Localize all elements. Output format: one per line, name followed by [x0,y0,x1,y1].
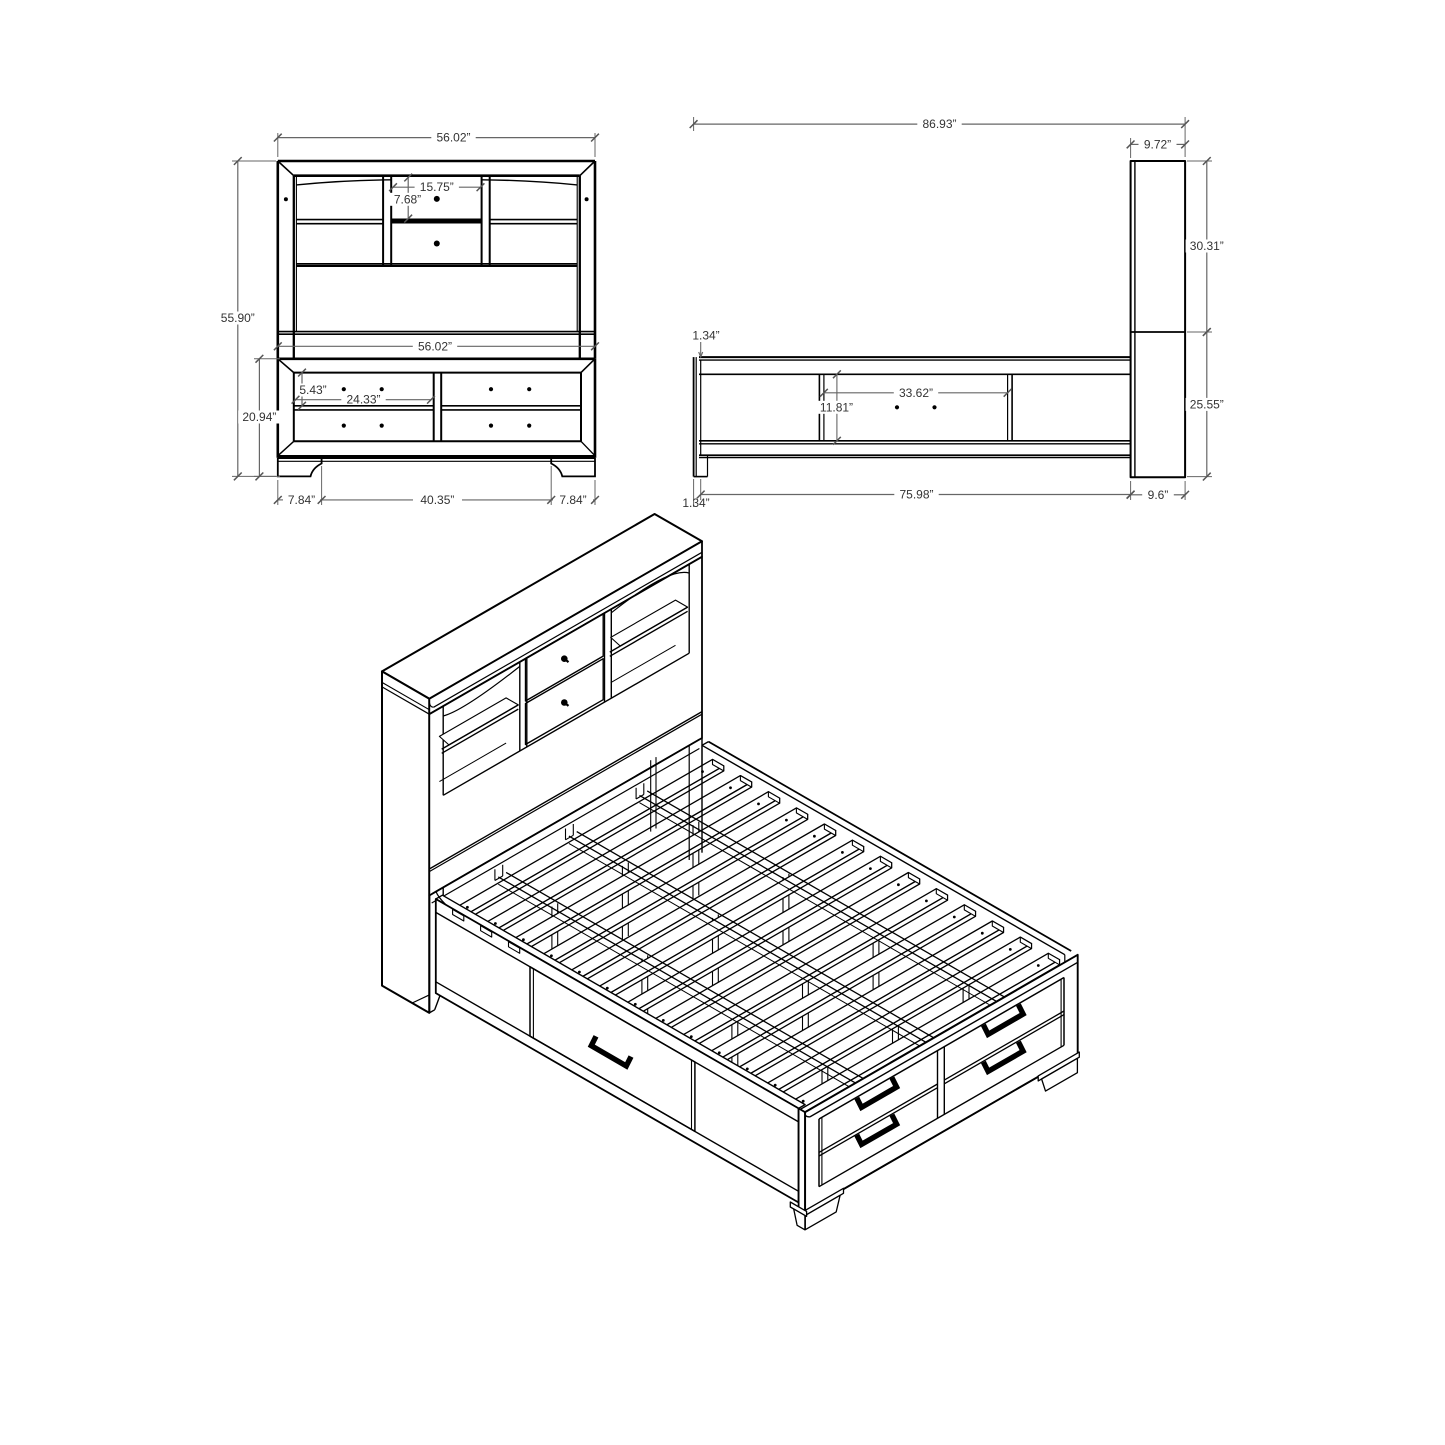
svg-text:9.6”: 9.6” [1148,488,1169,502]
svg-text:56.02”: 56.02” [436,131,470,145]
svg-text:55.90”: 55.90” [221,311,255,325]
svg-text:33.62”: 33.62” [899,386,933,400]
svg-text:9.72”: 9.72” [1144,137,1171,151]
svg-text:7.84”: 7.84” [559,493,586,507]
svg-text:86.93”: 86.93” [922,117,956,131]
svg-text:30.31”: 30.31” [1190,239,1224,253]
svg-text:25.55”: 25.55” [1190,397,1224,411]
svg-text:11.81”: 11.81” [820,400,853,414]
svg-text:56.02”: 56.02” [418,339,452,353]
svg-text:5.43”: 5.43” [299,383,326,397]
svg-text:7.84”: 7.84” [288,493,315,507]
svg-text:1.34”: 1.34” [682,496,709,510]
svg-text:40.35”: 40.35” [420,493,454,507]
svg-text:24.33”: 24.33” [346,393,380,407]
svg-text:7.68”: 7.68” [394,192,421,206]
svg-text:15.75”: 15.75” [420,180,454,194]
svg-text:20.94”: 20.94” [242,410,276,424]
svg-text:1.34”: 1.34” [692,328,719,342]
svg-text:75.98”: 75.98” [899,488,933,502]
